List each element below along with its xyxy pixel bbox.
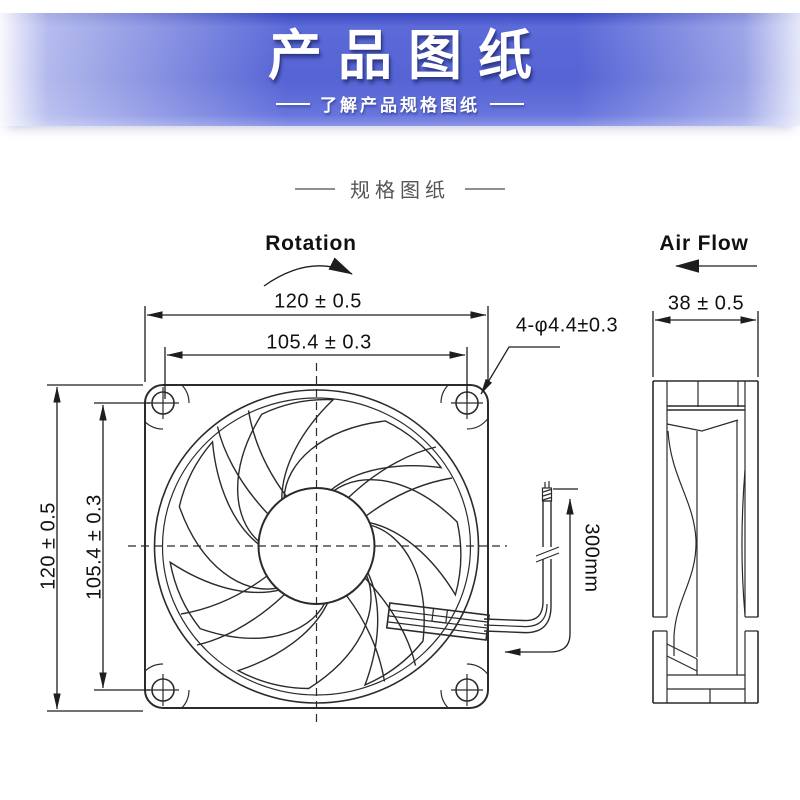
fan-technical-drawing [0, 0, 800, 800]
rotation-label: Rotation [265, 232, 357, 256]
front-view-drawing [128, 363, 559, 727]
side-dimensions [653, 266, 758, 377]
rotation-arrow [264, 266, 352, 286]
lead-wire [484, 481, 559, 633]
front-hole-pitch-h-label: 105.4 ± 0.3 [266, 332, 371, 355]
wire-length-label: 300mm [580, 523, 603, 592]
front-width-dim-label: 120 ± 0.5 [274, 291, 362, 314]
front-hole-pitch-v-label: 105.4 ± 0.3 [84, 494, 107, 599]
airflow-label: Air Flow [659, 232, 748, 256]
side-view-drawing [653, 381, 758, 703]
mounting-holes-dim-label: 4-φ4.4±0.3 [516, 315, 618, 338]
front-height-dim-label: 120 ± 0.5 [38, 502, 61, 590]
side-depth-dim-label: 38 ± 0.5 [668, 293, 744, 316]
wire-length-dim-line [505, 499, 570, 652]
